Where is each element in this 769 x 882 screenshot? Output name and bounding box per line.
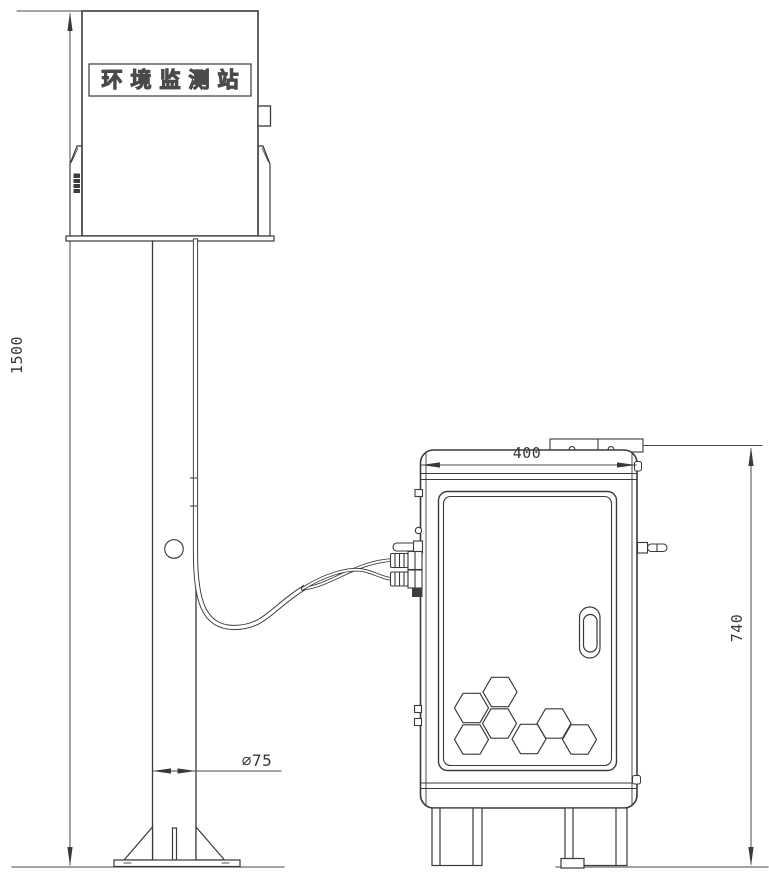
hinge-bump (415, 719, 422, 726)
cable-gland-lower (391, 570, 423, 588)
dim-pole-height (17, 11, 84, 866)
door-handle-icon (580, 607, 601, 658)
hinge-bump (415, 490, 423, 497)
cabinet-legs (432, 808, 627, 868)
dim-label-pole-diameter: ∅75 (222, 751, 292, 770)
cable-conduit (191, 241, 393, 628)
cable-gland-upper (391, 552, 423, 570)
pole-cable-hole (165, 540, 184, 559)
technical-drawing-canvas: 环境监测站 1500 ∅75 400 740 (0, 0, 769, 882)
equipment-cabinet (391, 450, 668, 868)
leg-foot (561, 859, 584, 869)
hinge-bump (635, 462, 642, 472)
cable-glands (391, 490, 423, 726)
hinge-bump (415, 706, 422, 713)
side-knob (415, 527, 421, 533)
monitor-station-enclosure (66, 11, 274, 241)
pole-base (114, 827, 240, 867)
base-gusset-right (196, 827, 225, 860)
side-latch-box (258, 106, 271, 126)
antenna-stub-icon (638, 543, 668, 554)
cabinet-leg-right (565, 808, 627, 866)
line-work-svg (0, 0, 769, 882)
hinge-bump (633, 776, 641, 785)
dim-label-cabinet-width: 400 (497, 444, 557, 462)
station-name-label: 环境监测站 (89, 64, 251, 96)
dim-label-cabinet-height: 740 (728, 598, 744, 658)
base-plate (114, 860, 240, 867)
base-rib (173, 828, 177, 860)
wing-vent-icon (74, 174, 81, 194)
dim-cabinet-height (748, 447, 753, 866)
mounting-pole (153, 241, 197, 860)
connector-port (412, 589, 423, 598)
right-wing-bracket (258, 146, 270, 236)
base-gusset-left (124, 827, 153, 860)
dim-label-pole-height: 1500 (8, 325, 24, 385)
enclosure-bottom-plate (66, 236, 274, 241)
enclosure-body (82, 11, 258, 236)
